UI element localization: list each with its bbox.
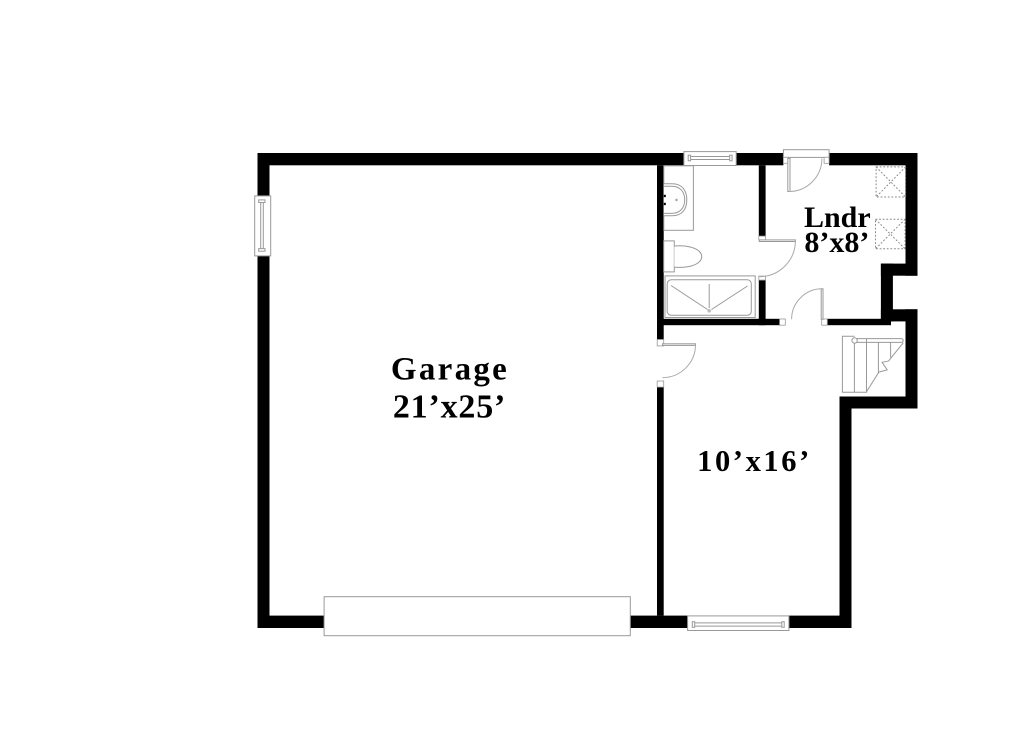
svg-text:10’x16’: 10’x16’ xyxy=(697,444,812,478)
svg-text:Garage: Garage xyxy=(391,352,509,388)
svg-text:21’x25’: 21’x25’ xyxy=(393,388,506,425)
svg-text:8’x8’: 8’x8’ xyxy=(804,226,869,259)
